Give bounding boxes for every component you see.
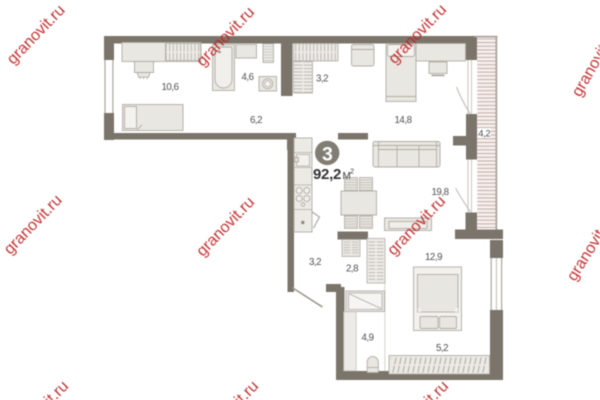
- svg-text:4,2: 4,2: [478, 129, 490, 140]
- svg-text:4,9: 4,9: [361, 332, 373, 343]
- svg-text:3,2: 3,2: [309, 257, 321, 268]
- svg-text:14,8: 14,8: [394, 115, 411, 126]
- svg-text:3: 3: [322, 143, 333, 165]
- svg-text:5,2: 5,2: [436, 343, 448, 354]
- svg-text:granovit.ru: granovit.ru: [387, 378, 452, 400]
- svg-text:12,9: 12,9: [425, 252, 442, 263]
- svg-text:granovit.ru: granovit.ru: [564, 211, 600, 284]
- svg-text:granovit.ru: granovit.ru: [4, 2, 69, 68]
- svg-text:2: 2: [350, 167, 354, 176]
- svg-text:3,2: 3,2: [316, 73, 328, 84]
- svg-text:10,6: 10,6: [161, 82, 178, 93]
- svg-text:granovit.ru: granovit.ru: [7, 378, 72, 400]
- svg-text:granovit.ru: granovit.ru: [193, 194, 258, 260]
- svg-text:6,2: 6,2: [250, 115, 262, 126]
- svg-text:92,2: 92,2: [313, 166, 341, 183]
- svg-text:granovit.ru: granovit.ru: [569, 26, 600, 100]
- svg-text:granovit.ru: granovit.ru: [197, 378, 262, 400]
- svg-text:granovit.ru: granovit.ru: [1, 192, 66, 258]
- svg-text:2,8: 2,8: [346, 263, 358, 274]
- svg-text:4,6: 4,6: [241, 72, 253, 83]
